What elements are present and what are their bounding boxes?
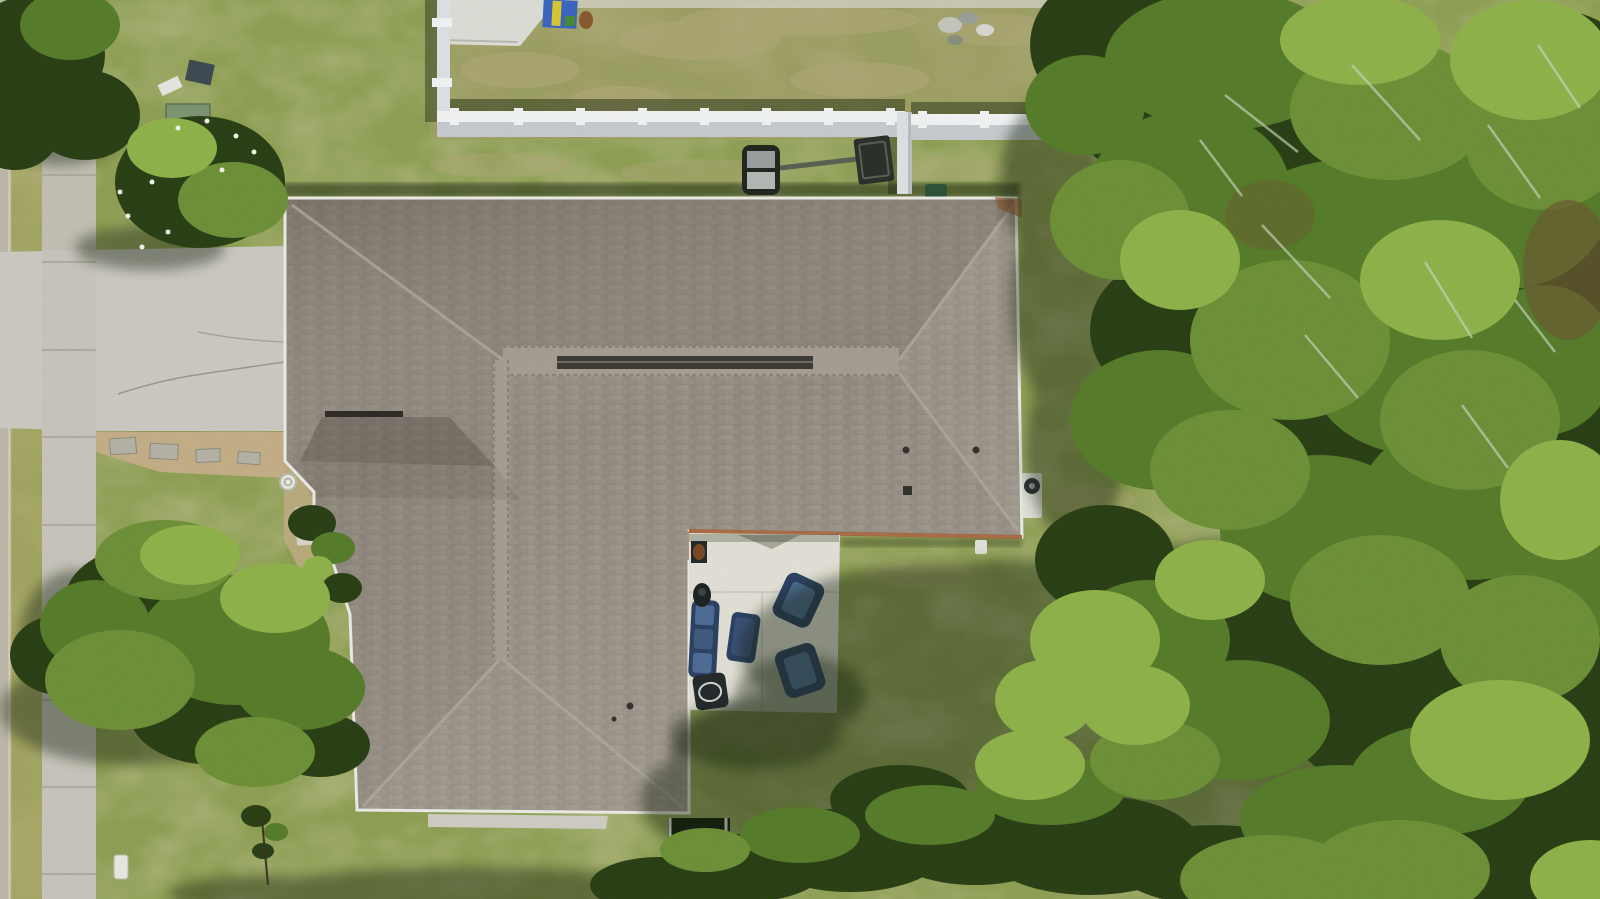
photo-grain <box>0 0 1600 899</box>
aerial-photo <box>0 0 1600 899</box>
